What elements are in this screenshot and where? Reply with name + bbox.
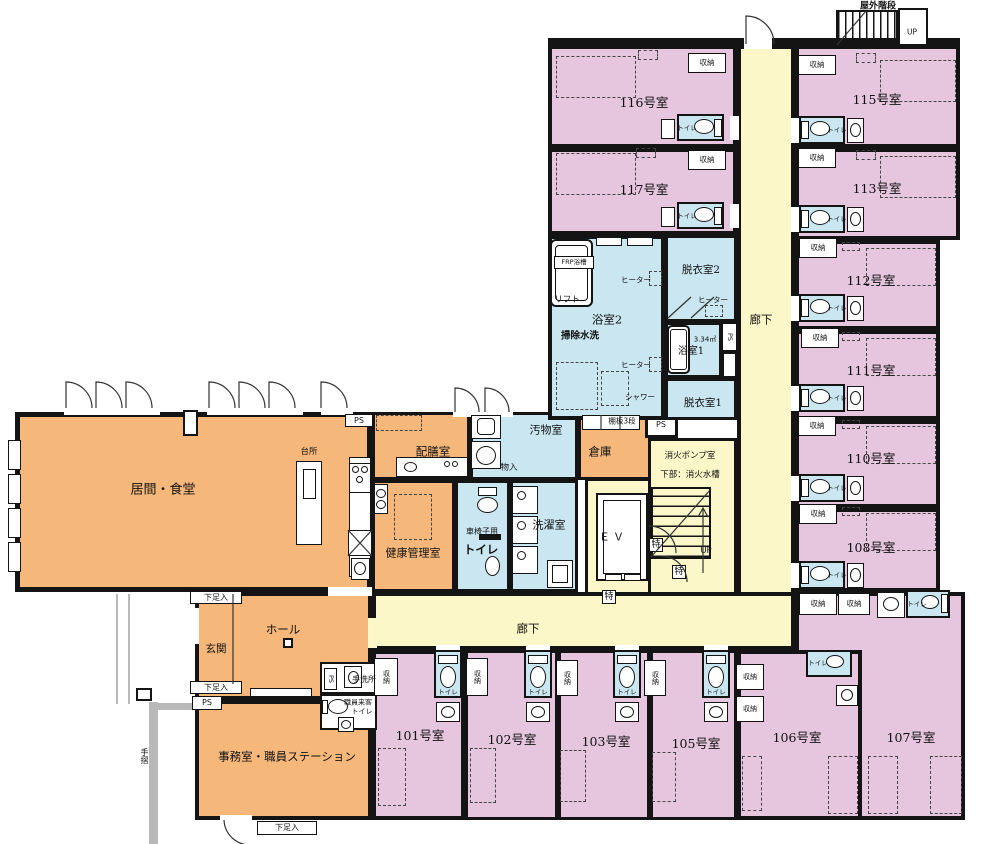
hall-bench bbox=[250, 688, 312, 697]
washer-1-door bbox=[517, 491, 526, 500]
toilet-107-tank bbox=[941, 594, 948, 613]
bed-111b bbox=[842, 332, 860, 341]
label-dressing1: 脱衣室1 bbox=[684, 398, 722, 409]
storage-115: 収納 bbox=[798, 55, 836, 75]
bed-117b bbox=[636, 148, 656, 158]
toilet-103-bowl bbox=[619, 666, 635, 688]
basin-103-bowl bbox=[620, 706, 634, 718]
bathtub2-inner bbox=[555, 245, 588, 301]
window-living-1 bbox=[8, 440, 21, 470]
label-storehouse: 倉庫 bbox=[589, 446, 612, 458]
door-gap-living-1 bbox=[64, 408, 160, 415]
toilet-112-label: トイレ bbox=[827, 305, 847, 312]
ps-label-washstand2: PS bbox=[324, 668, 337, 690]
toilet-113-tank bbox=[801, 210, 809, 228]
paper-box-116 bbox=[661, 119, 675, 139]
label-wheelchair: 車椅子用 bbox=[466, 528, 498, 536]
door-gap-office-bottom bbox=[220, 815, 252, 823]
bed-103 bbox=[560, 750, 586, 802]
bath2-fixture-2 bbox=[627, 237, 653, 246]
toilet-110-label: トイレ bbox=[827, 485, 847, 492]
label-lift: リフト bbox=[554, 296, 580, 305]
basin-113-bowl bbox=[850, 212, 861, 226]
soiled-sink-2-bowl bbox=[476, 446, 496, 465]
bed-106a bbox=[742, 756, 762, 811]
toilet-117-bowl bbox=[694, 207, 714, 222]
stove-burner-3 bbox=[356, 476, 363, 483]
label-soiled: 汚物室 bbox=[530, 425, 563, 436]
label-room-103: 103号室 bbox=[582, 736, 631, 749]
label-room-112: 112号室 bbox=[847, 275, 896, 288]
door-arc-soiled-1 bbox=[455, 388, 479, 412]
bed-108b bbox=[842, 507, 860, 516]
serving-burner-1 bbox=[444, 461, 450, 467]
hall-pillar bbox=[283, 638, 293, 648]
door-gap-108 bbox=[791, 563, 799, 588]
door-gap-112 bbox=[791, 296, 799, 321]
toilet-108-label: トイレ bbox=[827, 572, 847, 579]
label-stair-up: UP bbox=[700, 547, 711, 556]
label-shelf: 棚板3段 bbox=[608, 417, 635, 425]
basin-107-bowl bbox=[883, 597, 899, 611]
label-laundry: 洗濯室 bbox=[533, 520, 566, 531]
corridor-junction bbox=[742, 596, 790, 646]
ev-door-1 bbox=[605, 574, 622, 581]
toilet-101-label: トイレ bbox=[438, 689, 458, 696]
storage-107a: 収納 bbox=[799, 593, 837, 615]
bed-107b bbox=[930, 756, 962, 814]
bed-113b bbox=[856, 150, 876, 160]
storage-117: 収納 bbox=[688, 150, 726, 170]
label-staff-toilet-1: 職員来客 bbox=[344, 700, 372, 707]
label-outdoor-stair: 屋外階段 bbox=[860, 3, 896, 12]
toilet-105-bowl bbox=[708, 666, 724, 688]
toku-label-1: 特 bbox=[649, 538, 663, 552]
health-basin-bowl bbox=[376, 489, 386, 498]
door-gap-110 bbox=[791, 476, 799, 501]
label-bath1: 浴室1 bbox=[678, 347, 704, 357]
serving-sink bbox=[404, 462, 417, 472]
wheelchair-toilet-bowl bbox=[477, 497, 498, 513]
bed-101 bbox=[378, 748, 406, 806]
counter-serving bbox=[376, 415, 422, 431]
basin-101-bowl bbox=[441, 706, 455, 718]
door-arc-living-5 bbox=[239, 382, 265, 408]
label-room-111: 111号室 bbox=[847, 365, 896, 378]
label-room-113: 113号室 bbox=[853, 183, 902, 196]
label-fire-tank: 下部：消火水槽 bbox=[660, 471, 720, 480]
washer-2-door bbox=[517, 521, 526, 530]
bed-107a bbox=[868, 756, 898, 814]
staff-toilet-basin-bowl bbox=[341, 720, 351, 729]
door-arc-living-7 bbox=[321, 382, 347, 408]
label-room-106: 106号室 bbox=[773, 732, 822, 745]
label-room-115: 115号室 bbox=[853, 94, 902, 107]
washer-3 bbox=[512, 546, 538, 574]
label-hall: ホール bbox=[266, 624, 301, 636]
bath2-fixture-1 bbox=[596, 237, 622, 246]
label-room-107: 107号室 bbox=[887, 732, 936, 745]
label-kitchen: 台所 bbox=[300, 448, 317, 457]
toilet-101-tank bbox=[438, 655, 458, 664]
storage-106a: 収納 bbox=[736, 664, 764, 690]
ps-label-kitchen: PS bbox=[345, 414, 373, 427]
opening-hall-corridor bbox=[328, 587, 372, 596]
walkway-rail-h bbox=[158, 703, 195, 710]
opening-hall-corridor2 bbox=[368, 618, 377, 648]
label-outdoor-up: UP bbox=[907, 28, 917, 36]
basin-105-bowl bbox=[709, 706, 723, 718]
kitchen-basin-bowl bbox=[354, 562, 366, 575]
door-arc-soiled-2 bbox=[485, 388, 509, 412]
desk-health-room bbox=[394, 494, 432, 540]
equipment-box-living bbox=[183, 410, 198, 436]
laundry-sink-bowl bbox=[552, 565, 568, 583]
window-living-4 bbox=[8, 542, 21, 572]
storage-102: 収納 bbox=[466, 658, 488, 696]
label-dressing2: 脱衣室2 bbox=[682, 265, 720, 276]
basin-106-bowl bbox=[841, 689, 853, 701]
toilet-102-tank bbox=[528, 655, 548, 664]
floor-plan: PSPSPSPSPSPS下足入下足入下足入FRP浴槽収納収納収納収納収納収納収納… bbox=[0, 0, 1000, 844]
kitchen-island-sink bbox=[303, 469, 316, 499]
label-monoire: 物入 bbox=[500, 464, 517, 473]
walkway-rail-v bbox=[149, 702, 158, 844]
door-arc-living-3 bbox=[126, 382, 152, 408]
wheelchair-toilet-bowl2 bbox=[485, 556, 500, 576]
bed-115b bbox=[856, 53, 876, 63]
toilet-106-bowl bbox=[826, 655, 844, 668]
walkway-post bbox=[136, 688, 152, 701]
label-fire-pump: 消火ポンプ室 bbox=[665, 452, 716, 461]
toilet-101-bowl bbox=[440, 666, 456, 688]
ps-label-storehouse: PS bbox=[656, 421, 666, 429]
door-arc-living-4 bbox=[209, 382, 235, 408]
label-heater-3: ヒーター bbox=[621, 361, 651, 369]
storage-105: 収納 bbox=[644, 660, 666, 696]
canopy-line-2 bbox=[128, 594, 130, 704]
door-gap-corridor-top bbox=[744, 38, 772, 49]
toku-label-3: 特 bbox=[602, 590, 616, 604]
window-living-3 bbox=[8, 508, 21, 538]
basin-112-bowl bbox=[850, 301, 861, 315]
basin-110-bowl bbox=[850, 481, 861, 495]
shoe-box-label-1: 下足入 bbox=[190, 591, 242, 604]
label-wheelchair-toilet: トイレ bbox=[464, 544, 499, 556]
label-room-110: 110号室 bbox=[847, 453, 896, 466]
basin-108-bowl bbox=[850, 568, 861, 582]
label-bath2: 浴室2 bbox=[592, 314, 622, 326]
door-arc-office bbox=[224, 820, 250, 844]
health-basin-bowl2 bbox=[376, 500, 386, 509]
stove-burner-2 bbox=[361, 466, 368, 473]
label-staff-toilet-2: トイレ bbox=[352, 709, 373, 716]
bed-102 bbox=[470, 748, 496, 803]
label-washstand: 手洗所 bbox=[352, 676, 376, 684]
toilet-117-label: トイレ bbox=[677, 213, 697, 220]
storage-101: 収納 bbox=[374, 658, 398, 696]
toilet-116-label: トイレ bbox=[677, 125, 697, 132]
toilet-111-label: トイレ bbox=[827, 395, 847, 402]
bed-110b bbox=[842, 420, 860, 429]
toilet-112-tank bbox=[801, 299, 809, 317]
washer-3-door bbox=[517, 551, 526, 560]
door-arc-living-1 bbox=[66, 382, 92, 408]
label-room-105: 105号室 bbox=[672, 738, 721, 751]
storage-103: 収納 bbox=[556, 660, 578, 696]
label-handrail: 手摺 bbox=[140, 748, 148, 764]
heater-2 bbox=[705, 305, 723, 317]
toilet-102-bowl bbox=[530, 666, 546, 688]
label-heater-1: ヒーター bbox=[621, 276, 651, 284]
corridor-horizontal bbox=[372, 592, 795, 650]
shower-area bbox=[556, 362, 598, 410]
room-dressing2 bbox=[665, 235, 737, 322]
bed-112b bbox=[842, 242, 860, 251]
bed-116b bbox=[638, 50, 658, 60]
toku-label-2: 特 bbox=[672, 565, 686, 579]
toilet-103-tank bbox=[617, 655, 637, 664]
door-gap-116 bbox=[730, 116, 739, 140]
basin-102-bowl bbox=[531, 706, 545, 718]
storage-112: 収納 bbox=[799, 238, 837, 258]
ps-label-bath: PS bbox=[722, 323, 737, 351]
outdoor-stair-steps bbox=[836, 10, 898, 46]
basin-111-bowl bbox=[850, 391, 861, 405]
bed-105 bbox=[652, 752, 676, 802]
soiled-sink-1-bowl bbox=[477, 418, 495, 435]
kitchen-fridge bbox=[348, 530, 372, 556]
frp-tub-label: FRP浴槽 bbox=[554, 256, 594, 269]
basin-115-bowl bbox=[850, 123, 861, 137]
meter-box-bath bbox=[722, 352, 737, 378]
label-room-108: 108号室 bbox=[847, 542, 896, 555]
toilet-110-tank bbox=[801, 479, 809, 497]
toilet-108-tank bbox=[801, 566, 809, 584]
door-gap-113 bbox=[791, 207, 799, 232]
toilet-103-label: トイレ bbox=[617, 689, 637, 696]
label-room-101: 101号室 bbox=[396, 730, 445, 743]
storage-110: 収納 bbox=[798, 416, 836, 436]
toilet-105-tank bbox=[706, 655, 726, 664]
toilet-115-label: トイレ bbox=[827, 127, 847, 134]
toilet-116-bowl bbox=[694, 119, 714, 134]
label-entrance: 玄関 bbox=[206, 644, 227, 655]
label-corridor-h: 廊下 bbox=[517, 623, 540, 635]
label-serving: 配膳室 bbox=[416, 446, 451, 458]
label-ev: ＥＶ bbox=[599, 532, 627, 543]
label-heater-2: ヒーター bbox=[698, 296, 728, 304]
window-living-2 bbox=[8, 474, 21, 504]
toilet-105-label: トイレ bbox=[706, 689, 726, 696]
bed-116 bbox=[556, 56, 636, 98]
toilet-115-tank bbox=[801, 121, 809, 139]
toilet-116-tank bbox=[714, 119, 722, 137]
toilet-113-label: トイレ bbox=[827, 216, 847, 223]
paper-box-117 bbox=[661, 207, 675, 227]
toilet-111-tank bbox=[801, 389, 809, 407]
serving-burner-2 bbox=[452, 461, 458, 467]
door-gap-entrance bbox=[191, 608, 199, 644]
toilet-102-label: トイレ bbox=[528, 689, 548, 696]
toilet-117-tank bbox=[714, 207, 722, 225]
door-arc-living-6 bbox=[269, 382, 295, 408]
canopy-line-1 bbox=[116, 594, 118, 704]
label-room-117: 117号室 bbox=[620, 184, 669, 197]
label-shower: シャワー bbox=[625, 393, 655, 401]
ev-door-2 bbox=[624, 574, 641, 581]
label-living-dining: 居間・食堂 bbox=[130, 484, 195, 497]
storage-108: 収納 bbox=[799, 504, 837, 524]
storage-111: 収納 bbox=[801, 328, 839, 348]
label-souji: 掃除水洗 bbox=[561, 331, 599, 341]
door-gap-111 bbox=[791, 386, 799, 411]
storage-113: 収納 bbox=[798, 148, 836, 168]
toilet-107-label: トイレ bbox=[907, 601, 927, 608]
shoe-box-label-2: 下足入 bbox=[190, 681, 242, 694]
label-room-116: 116号室 bbox=[620, 97, 669, 110]
label-office: 事務室・職員ステーション bbox=[218, 751, 356, 763]
label-health: 健康管理室 bbox=[386, 548, 441, 559]
stove-burner-1 bbox=[352, 466, 359, 473]
door-gap-living-2 bbox=[207, 408, 303, 415]
shoe-box-label-3: 下足入 bbox=[257, 821, 317, 835]
washer-1 bbox=[512, 486, 538, 514]
door-gap-115 bbox=[791, 118, 799, 143]
door-gap-117 bbox=[730, 204, 739, 228]
label-bath1-area: 3.34㎡ bbox=[694, 337, 717, 344]
label-corridor-v: 廊下 bbox=[750, 314, 773, 326]
door-arc-living-2 bbox=[96, 382, 122, 408]
toilet-106-label: トイレ bbox=[808, 660, 828, 667]
ps-label-hall: PS bbox=[192, 696, 222, 710]
label-room-102: 102号室 bbox=[488, 734, 537, 747]
storage-106b: 収納 bbox=[736, 696, 764, 722]
storage-107b: 収納 bbox=[838, 593, 870, 615]
bed-106b bbox=[828, 756, 858, 814]
wheelchair-toilet-tank bbox=[478, 487, 497, 496]
storage-116: 収納 bbox=[688, 53, 726, 73]
